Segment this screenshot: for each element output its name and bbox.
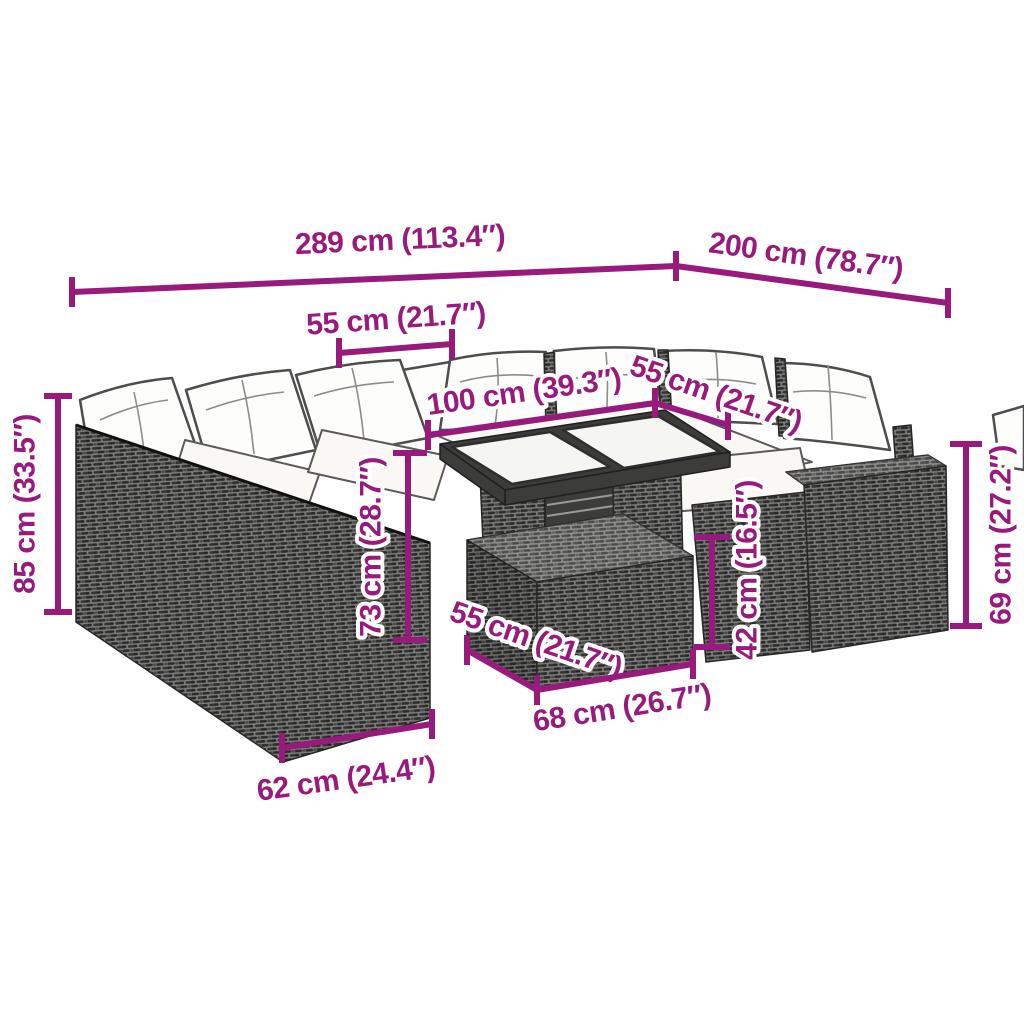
- dim-line: [339, 344, 452, 353]
- dim-label: 55 cm (21.7″): [305, 296, 487, 341]
- furniture-dimension-diagram: 289 cm (113.4″) 200 cm (78.7″) 55 cm (21…: [0, 0, 1024, 1024]
- dim-overall-depth: 200 cm (78.7″): [676, 226, 948, 318]
- right-armrest: [786, 425, 948, 652]
- dim-overall-width: 289 cm (113.4″): [72, 219, 676, 307]
- dim-line: [72, 266, 676, 292]
- dim-armrest-height: 69 cm (27.2″): [950, 444, 1018, 626]
- dim-label: 69 cm (27.2″): [985, 445, 1018, 625]
- sofa-left-wing: [76, 360, 448, 762]
- product-dimension-image: 289 cm (113.4″) 200 cm (78.7″) 55 cm (21…: [0, 0, 1024, 1024]
- dim-label: 85 cm (33.5″): [9, 414, 42, 594]
- dim-label: 73 cm (28.7″): [355, 457, 388, 637]
- dim-label: 289 cm (113.4″): [294, 219, 506, 261]
- dim-label: 42 cm (16.5″): [731, 480, 764, 660]
- dim-sofa-height: 85 cm (33.5″): [9, 396, 73, 612]
- armrest-front: [804, 466, 948, 652]
